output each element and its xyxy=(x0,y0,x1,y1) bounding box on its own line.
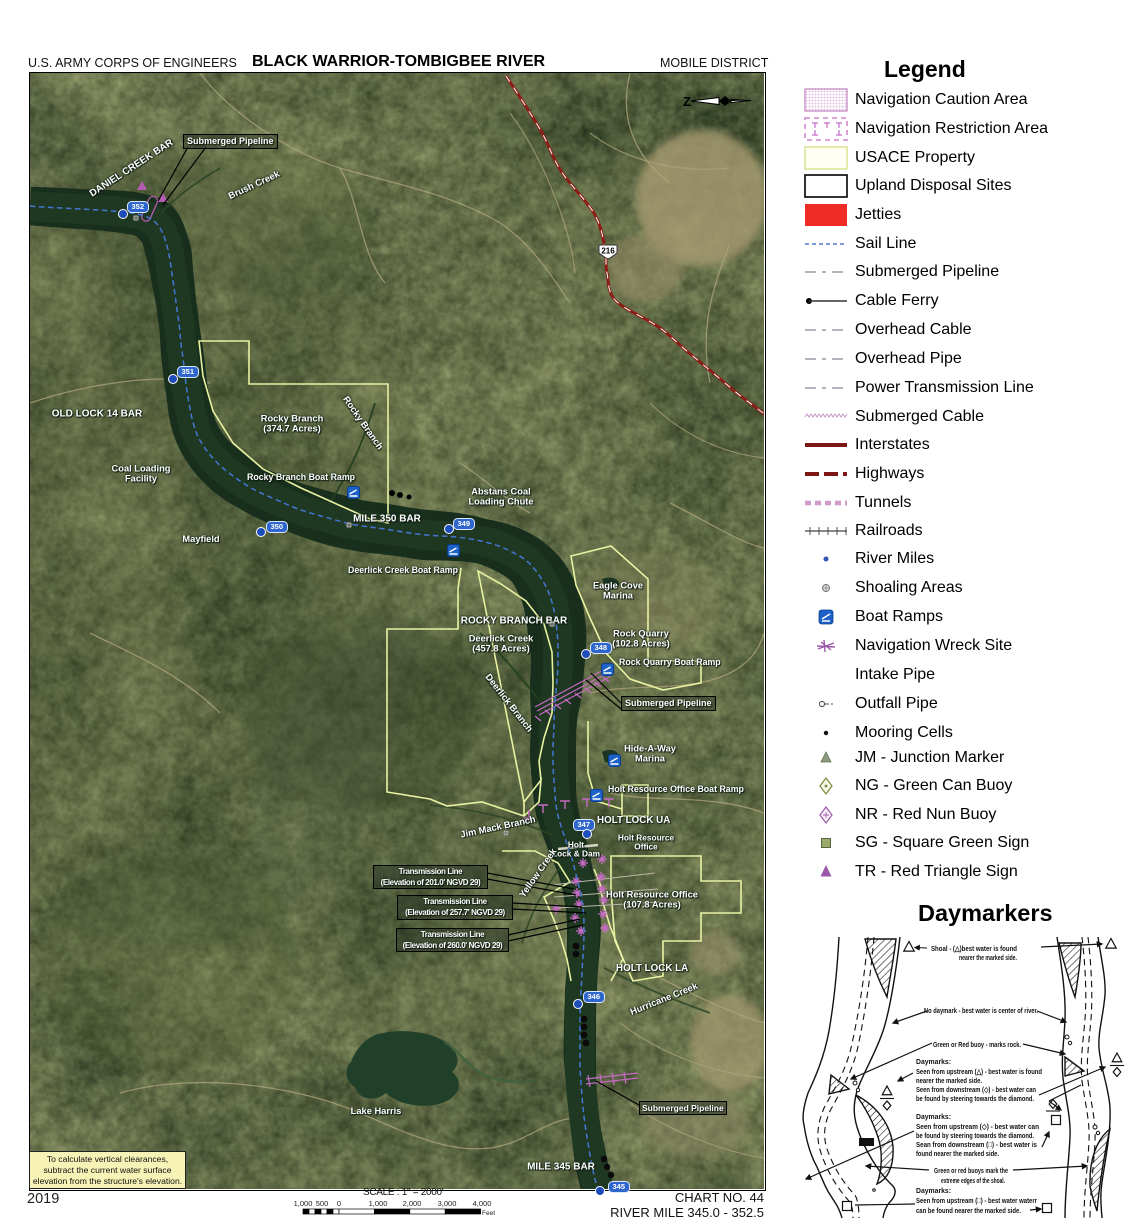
svg-text:Sean from downstream (□) - be: Sean from downstream (□) - best water is xyxy=(916,1140,1037,1149)
svg-text:Feet: Feet xyxy=(482,1210,495,1217)
svg-text:1,000: 1,000 xyxy=(294,1199,313,1208)
svg-text:3,000: 3,000 xyxy=(438,1199,457,1208)
svg-text:0: 0 xyxy=(337,1199,341,1208)
svg-text:4,000: 4,000 xyxy=(473,1199,492,1208)
svg-text:Daymarks:: Daymarks: xyxy=(916,1186,951,1195)
svg-text:Seen from downstream (◇) - bes: Seen from downstream (◇) - best water ca… xyxy=(916,1085,1036,1094)
svg-text:Shoal - (△)best water is found: Shoal - (△)best water is found xyxy=(931,944,1017,953)
svg-text:be found by steering towards t: be found by steering towards the diamond… xyxy=(916,1131,1034,1140)
svg-text:No daymark - best water is cen: No daymark - best water is center of riv… xyxy=(924,1006,1038,1015)
svg-text:nearer the marked side.: nearer the marked side. xyxy=(916,1076,982,1085)
svg-text:Seen from upstream (◇) - best: Seen from upstream (◇) - best water can xyxy=(916,1122,1039,1131)
svg-text:1,000: 1,000 xyxy=(369,1199,388,1208)
svg-text:Seen from upstream (□) - best: Seen from upstream (□) - best water wate… xyxy=(916,1196,1037,1205)
svg-text:216: 216 xyxy=(601,247,615,256)
svg-text:nearer the marked side.: nearer the marked side. xyxy=(959,953,1017,962)
svg-text:be found by steering towards t: be found by steering towards the diamond… xyxy=(916,1094,1034,1103)
svg-text:Green or red buoys mark the: Green or red buoys mark the xyxy=(934,1166,1008,1175)
svg-text:can be found nearer the marked: can be found nearer the marked side. xyxy=(916,1206,1021,1215)
svg-text:Green or Red buoy - marks rock: Green or Red buoy - marks rock. xyxy=(933,1040,1021,1049)
svg-text:Daymarks:: Daymarks: xyxy=(916,1112,951,1121)
svg-text:Z: Z xyxy=(683,94,691,109)
svg-text:2,000: 2,000 xyxy=(403,1199,422,1208)
svg-text:found nearer the marked side.: found nearer the marked side. xyxy=(916,1149,999,1158)
svg-text:extreme edges of the shoal.: extreme edges of the shoal. xyxy=(941,1176,1005,1185)
svg-text:500: 500 xyxy=(316,1199,329,1208)
svg-text:Seen from upstream (△) - best: Seen from upstream (△) - best water is f… xyxy=(916,1067,1042,1076)
svg-text:Daymarks:: Daymarks: xyxy=(916,1057,951,1066)
